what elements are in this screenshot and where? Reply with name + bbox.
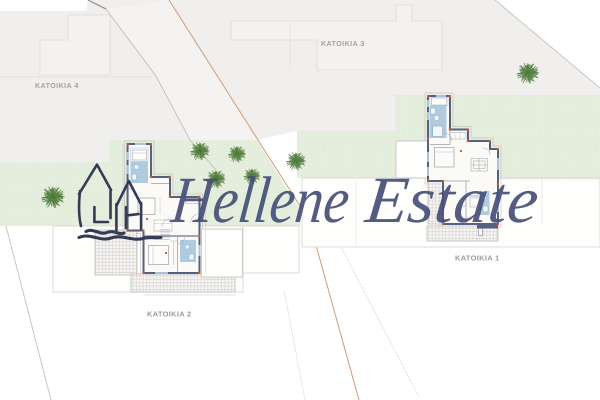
svg-text:KATOIKIA 2: KATOIKIA 2	[147, 310, 192, 319]
svg-text:KATOIKIA 1: KATOIKIA 1	[455, 254, 500, 263]
svg-text:KATOIKIA 3: KATOIKIA 3	[321, 41, 365, 48]
svg-text:Estate: Estate	[361, 164, 542, 237]
svg-text:Hellene: Hellene	[168, 164, 354, 237]
svg-text:KATOIKIA 4: KATOIKIA 4	[35, 83, 79, 90]
